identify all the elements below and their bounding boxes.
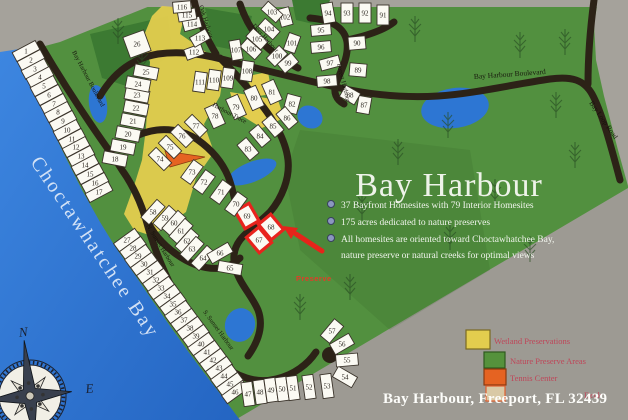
lot-21-number: 21 bbox=[130, 117, 138, 125]
bay-harbour-map: 1234567891011121314151617181920212223242… bbox=[0, 0, 628, 420]
lot-84-number: 84 bbox=[257, 132, 265, 140]
lot-94-number: 94 bbox=[325, 9, 333, 17]
lot-83-number: 83 bbox=[245, 145, 253, 153]
legend-swatch bbox=[484, 369, 506, 385]
lot-5-number: 5 bbox=[42, 82, 46, 90]
lot-92-number: 92 bbox=[362, 9, 370, 17]
bullet-icon bbox=[328, 235, 335, 242]
lot-23-number: 23 bbox=[134, 91, 142, 99]
lot-6-number: 6 bbox=[47, 91, 51, 99]
lot-69-number: 69 bbox=[244, 212, 252, 220]
lot-70-number: 70 bbox=[233, 200, 241, 208]
lot-87-number: 87 bbox=[361, 101, 369, 109]
lot-25-number: 25 bbox=[143, 68, 151, 76]
lot-37-number: 37 bbox=[181, 316, 189, 324]
lot-40-number: 40 bbox=[198, 340, 206, 348]
lot-74-number: 74 bbox=[157, 155, 165, 163]
lot-108-number: 108 bbox=[242, 67, 253, 75]
lot-26-number: 26 bbox=[134, 40, 142, 48]
lot-4-number: 4 bbox=[38, 73, 42, 81]
bullet-icon bbox=[328, 218, 335, 225]
lot-106-number: 106 bbox=[246, 45, 257, 53]
lot-9-number: 9 bbox=[61, 117, 65, 125]
lot-15-number: 15 bbox=[87, 170, 95, 178]
lot-44-number: 44 bbox=[221, 372, 229, 380]
lot-80-number: 80 bbox=[251, 94, 259, 102]
lot-100-number: 100 bbox=[272, 52, 283, 60]
lot-27-number: 27 bbox=[124, 236, 132, 244]
lot-81-number: 81 bbox=[269, 88, 277, 96]
lot-54-number: 54 bbox=[342, 373, 350, 381]
lot-53-number: 53 bbox=[324, 382, 332, 390]
lot-22-number: 22 bbox=[133, 104, 141, 112]
legend-swatch bbox=[484, 352, 505, 368]
lot-90-number: 90 bbox=[354, 39, 362, 47]
lot-48-number: 48 bbox=[257, 388, 265, 396]
legend-label: Nature Preserve Areas bbox=[510, 356, 586, 366]
lot-38-number: 38 bbox=[187, 324, 195, 332]
bullet-icon bbox=[328, 201, 335, 208]
bullet-3-line1: All homesites are oriented toward Chocta… bbox=[341, 235, 554, 245]
lot-89-number: 89 bbox=[355, 66, 363, 74]
lot-14-number: 14 bbox=[82, 161, 90, 169]
lot-16-number: 16 bbox=[92, 179, 100, 187]
compass-east-label: E bbox=[84, 380, 95, 396]
lot-29-number: 29 bbox=[135, 252, 143, 260]
lot-78-number: 78 bbox=[212, 112, 220, 120]
lot-86-number: 86 bbox=[284, 114, 292, 122]
lot-2-number: 2 bbox=[29, 56, 33, 64]
lot-111-number: 111 bbox=[195, 78, 205, 86]
lot-12-number: 12 bbox=[73, 143, 81, 151]
lot-110-number: 110 bbox=[209, 76, 220, 84]
lot-95-number: 95 bbox=[318, 26, 326, 34]
lot-67-number: 67 bbox=[256, 236, 264, 244]
lot-116-number: 116 bbox=[177, 3, 188, 11]
lot-91-number: 91 bbox=[380, 11, 388, 19]
lot-68-number: 68 bbox=[268, 223, 276, 231]
lot-98-number: 98 bbox=[324, 77, 332, 85]
preserve-label: Preserve bbox=[296, 274, 332, 283]
lot-19-number: 19 bbox=[120, 143, 128, 151]
legend-label: Wetland Preservations bbox=[494, 336, 570, 346]
lot-56-number: 56 bbox=[339, 340, 347, 348]
lot-114-number: 114 bbox=[187, 20, 198, 28]
lot-17-number: 17 bbox=[96, 188, 104, 196]
lot-31-number: 31 bbox=[147, 268, 155, 276]
lot-10-number: 10 bbox=[64, 126, 72, 134]
lot-51-number: 51 bbox=[290, 384, 298, 392]
lot-77-number: 77 bbox=[193, 122, 201, 130]
lot-52-number: 52 bbox=[306, 383, 314, 391]
lot-75-number: 75 bbox=[167, 143, 175, 151]
lot-103-number: 103 bbox=[267, 8, 278, 16]
lot-76-number: 76 bbox=[179, 132, 187, 140]
lot-60-number: 60 bbox=[171, 219, 179, 227]
lot-71-number: 71 bbox=[218, 188, 226, 196]
lot-46-number: 46 bbox=[232, 388, 240, 396]
lot-97-number: 97 bbox=[327, 59, 335, 67]
legend-label: Tennis Center bbox=[510, 373, 557, 383]
address-line: Bay Harbour, Freeport, FL 32439 bbox=[383, 391, 607, 407]
lot-72-number: 72 bbox=[201, 178, 209, 186]
lot-82-number: 82 bbox=[289, 100, 297, 108]
lot-34-number: 34 bbox=[164, 292, 172, 300]
lot-107-number: 107 bbox=[231, 46, 242, 54]
plat-map-scan: 1234567891011121314151617181920212223242… bbox=[0, 0, 628, 420]
lot-93-number: 93 bbox=[344, 9, 352, 17]
lot-36-number: 36 bbox=[175, 308, 183, 316]
lot-3-number: 3 bbox=[33, 65, 37, 73]
lot-49-number: 49 bbox=[268, 386, 276, 394]
lot-24-number: 24 bbox=[135, 80, 143, 88]
lot-18-number: 18 bbox=[112, 155, 120, 163]
lot-65-number: 65 bbox=[227, 264, 235, 272]
lot-79-number: 79 bbox=[233, 103, 241, 111]
lot-109-number: 109 bbox=[223, 74, 234, 82]
lot-113-number: 113 bbox=[195, 34, 206, 42]
lot-96-number: 96 bbox=[318, 43, 326, 51]
lot-8-number: 8 bbox=[56, 108, 60, 116]
lot-20-number: 20 bbox=[125, 130, 133, 138]
lot-101-number: 101 bbox=[287, 39, 298, 47]
lot-50-number: 50 bbox=[279, 385, 287, 393]
lot-33-number: 33 bbox=[158, 284, 166, 292]
lot-61-number: 61 bbox=[178, 227, 186, 235]
lot-1-number: 1 bbox=[24, 47, 28, 55]
lot-73-number: 73 bbox=[189, 168, 197, 176]
lot-41-number: 41 bbox=[204, 348, 212, 356]
lot-99-number: 99 bbox=[285, 59, 293, 67]
legend-swatch bbox=[466, 330, 490, 349]
lot-47-number: 47 bbox=[245, 390, 253, 398]
bullet-1: 37 Bayfront Homesites with 79 Interior H… bbox=[341, 200, 534, 211]
lot-57-number: 57 bbox=[329, 327, 337, 335]
lot-55-number: 55 bbox=[344, 356, 352, 364]
map-title: Bay Harbour bbox=[355, 167, 543, 204]
lot-112-number: 112 bbox=[189, 48, 200, 56]
lot-66-number: 66 bbox=[217, 249, 225, 257]
lot-13-number: 13 bbox=[78, 152, 86, 160]
lot-85-number: 85 bbox=[270, 122, 278, 130]
lot-30-number: 30 bbox=[141, 260, 149, 268]
lot-63-number: 63 bbox=[189, 245, 197, 253]
lot-42-number: 42 bbox=[210, 356, 218, 364]
bullet-3-line2: nature preserve or natural creeks for op… bbox=[341, 250, 535, 261]
bullet-2: 175 acres dedicated to nature preserves bbox=[341, 218, 490, 228]
lot-64-number: 64 bbox=[200, 254, 208, 262]
lot-58-number: 58 bbox=[150, 208, 158, 216]
